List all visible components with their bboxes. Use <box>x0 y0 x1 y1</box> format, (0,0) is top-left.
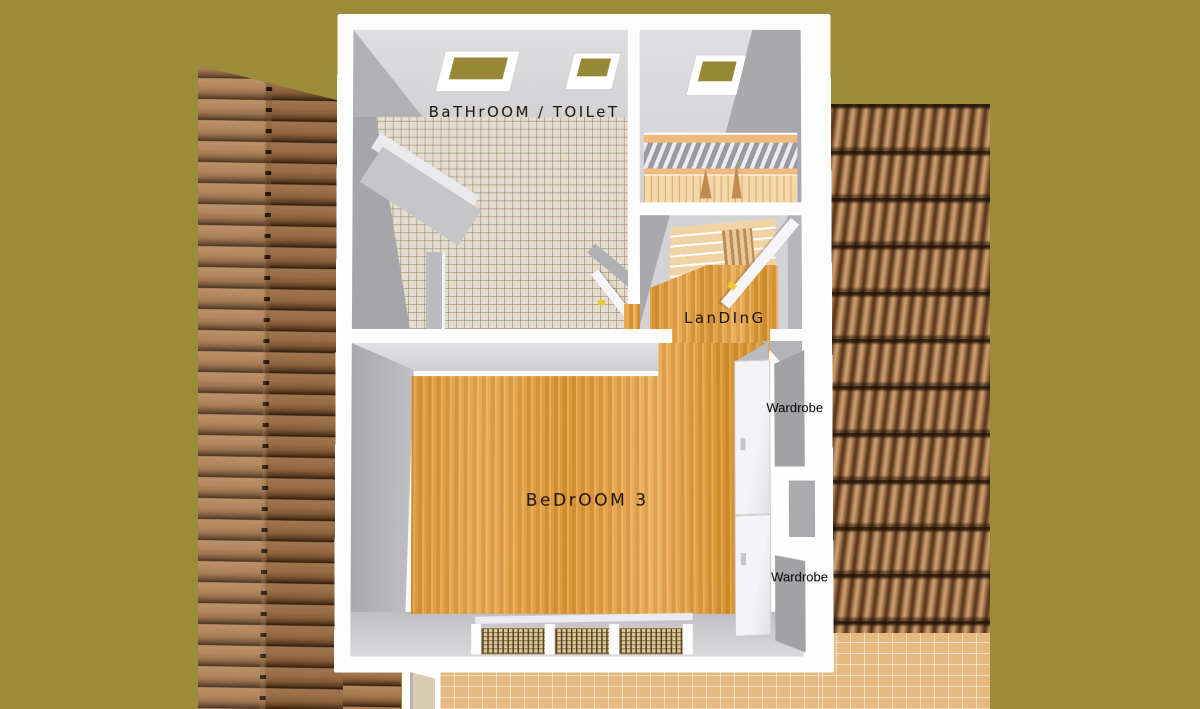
skylight-3-glass <box>698 61 737 81</box>
wardrobe-door-2 <box>735 514 772 637</box>
floorplan-scene: BaTHrOOM / TOILeT <box>0 0 1200 709</box>
wardrobe-door-handle-1 <box>740 438 745 450</box>
balustrade <box>644 133 798 203</box>
railing-window-1 <box>481 628 547 654</box>
skylight-1 <box>436 52 520 92</box>
railing-post-3 <box>609 624 619 654</box>
bathroom-label: BaTHrOOM / TOILeT <box>429 103 620 121</box>
bathroom-room: BaTHrOOM / TOILeT <box>352 30 628 329</box>
floor-plan: BaTHrOOM / TOILeT <box>334 14 834 673</box>
railing-window-3 <box>619 628 685 654</box>
balustrade-planks <box>644 174 798 202</box>
stairwell-room <box>640 30 802 202</box>
left-roof <box>198 60 348 709</box>
bathroom-doorway-wood-strip <box>624 304 640 329</box>
bedroom-left-wall <box>350 343 413 614</box>
bedroom-label: BeDrOOM 3 <box>526 491 649 511</box>
bedroom-top-wall <box>352 329 672 343</box>
right-roof-patio <box>822 633 990 709</box>
bedroom-corner-wall-top <box>770 329 802 341</box>
left-roof-shading <box>198 60 348 709</box>
balustrade-spindles <box>644 143 798 169</box>
landing-label: LanDInG <box>684 309 766 327</box>
wardrobe-label-1: Wardrobe <box>766 400 823 415</box>
railing-post-left <box>471 624 481 654</box>
railing-post-2 <box>545 624 555 654</box>
wardrobe-door-handle-2 <box>741 553 746 565</box>
right-roof <box>822 104 990 635</box>
wardrobe-niche-box <box>789 481 815 537</box>
bathroom-door-handle <box>598 300 605 305</box>
landing-room: LanDInG <box>640 215 802 347</box>
bedroom-wood-floor <box>395 341 778 616</box>
railing-post-right <box>683 624 693 654</box>
toilet-partition-wall <box>426 252 445 329</box>
skylight-2-glass <box>577 59 611 77</box>
lower-floor-wall-face <box>410 672 435 709</box>
skylight-3 <box>687 56 747 96</box>
skylight-2 <box>566 54 621 90</box>
skylight-1-glass <box>449 58 508 80</box>
balustrade-top-rail <box>644 133 797 143</box>
stairwell-bottom-wall <box>628 202 802 215</box>
wardrobe-label-2: Wardrobe <box>771 569 828 584</box>
